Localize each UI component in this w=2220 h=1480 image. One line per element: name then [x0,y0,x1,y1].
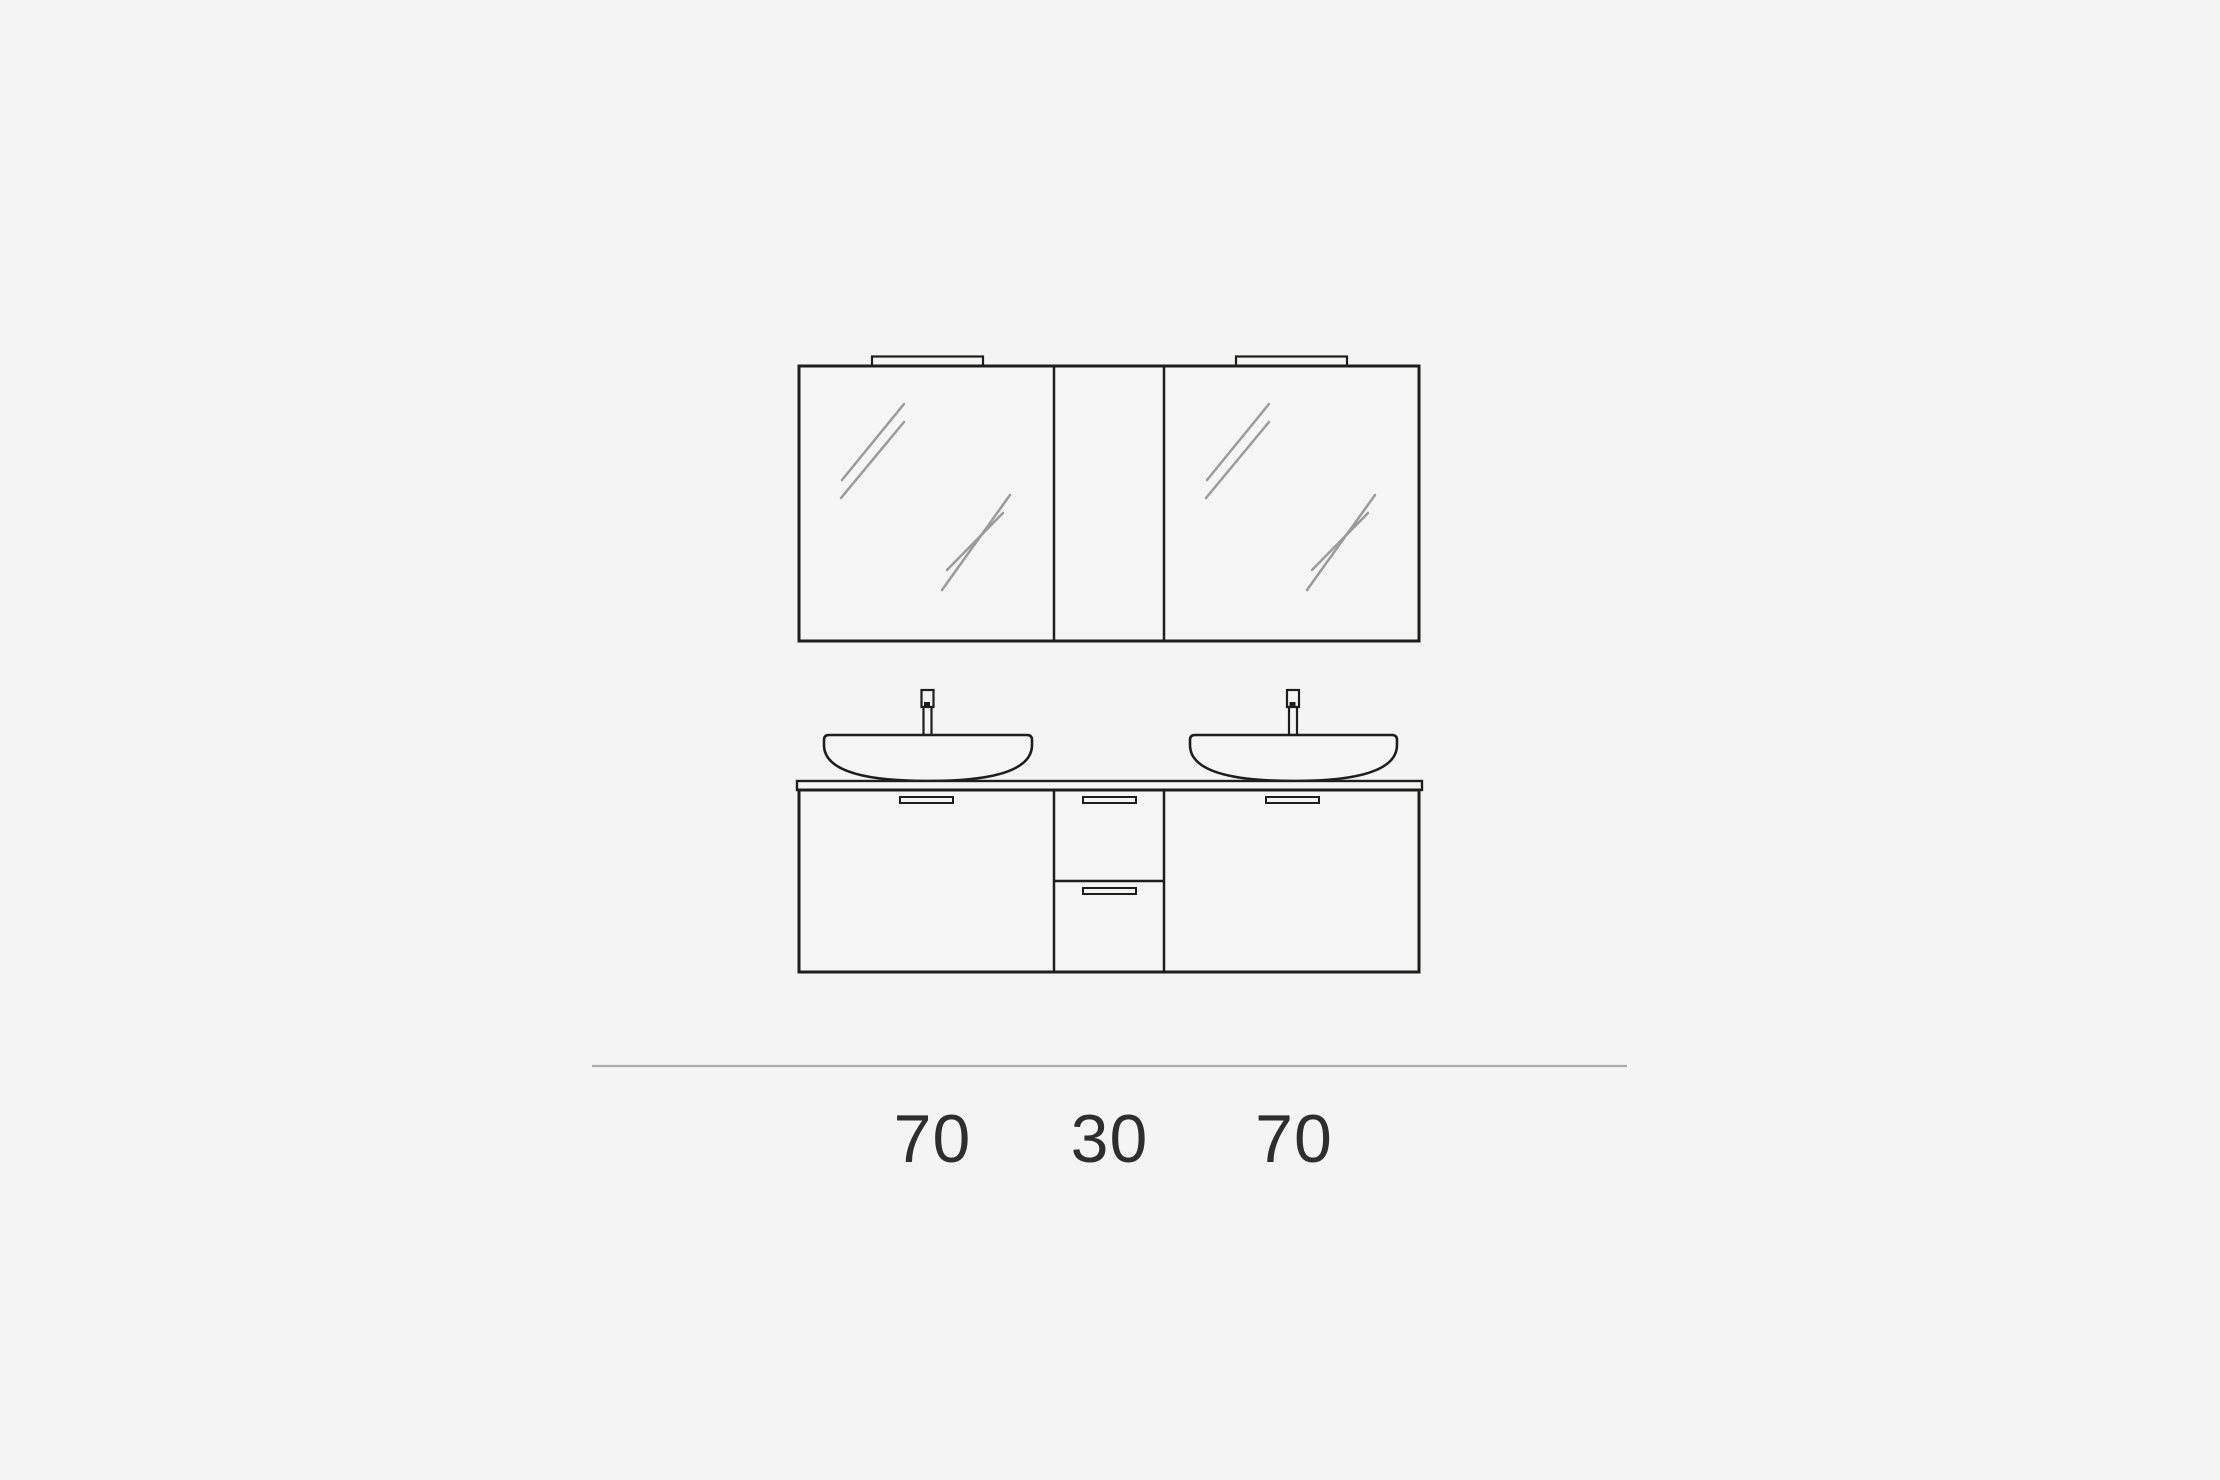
dimension-label-left: 70 [894,1101,972,1177]
dimension-labels: 70 30 70 [894,1101,1333,1177]
base-cabinets [799,790,1419,972]
mirror-cabinet-outline [799,366,1419,641]
sink-basin-left [824,735,1032,781]
vanity-elevation-diagram: 70 30 70 [0,0,2220,1480]
door-handle-right [1266,797,1319,803]
mirror-cabinets [799,357,1419,642]
sink-basin-right [1190,735,1397,781]
faucet-right [1287,690,1299,735]
drawer-handle-bottom [1083,888,1136,894]
faucet-right-spout [1290,702,1296,707]
faucet-left [922,690,934,735]
dimension-label-middle: 30 [1071,1101,1149,1177]
dimension-label-right: 70 [1255,1101,1333,1177]
faucet-left-body [924,707,932,735]
drawer-handle-top [1083,797,1136,803]
door-handle-left [900,797,953,803]
faucet-right-body [1289,707,1297,735]
vanity-drawing: 70 30 70 [0,0,2220,1480]
faucet-left-spout [924,702,930,707]
